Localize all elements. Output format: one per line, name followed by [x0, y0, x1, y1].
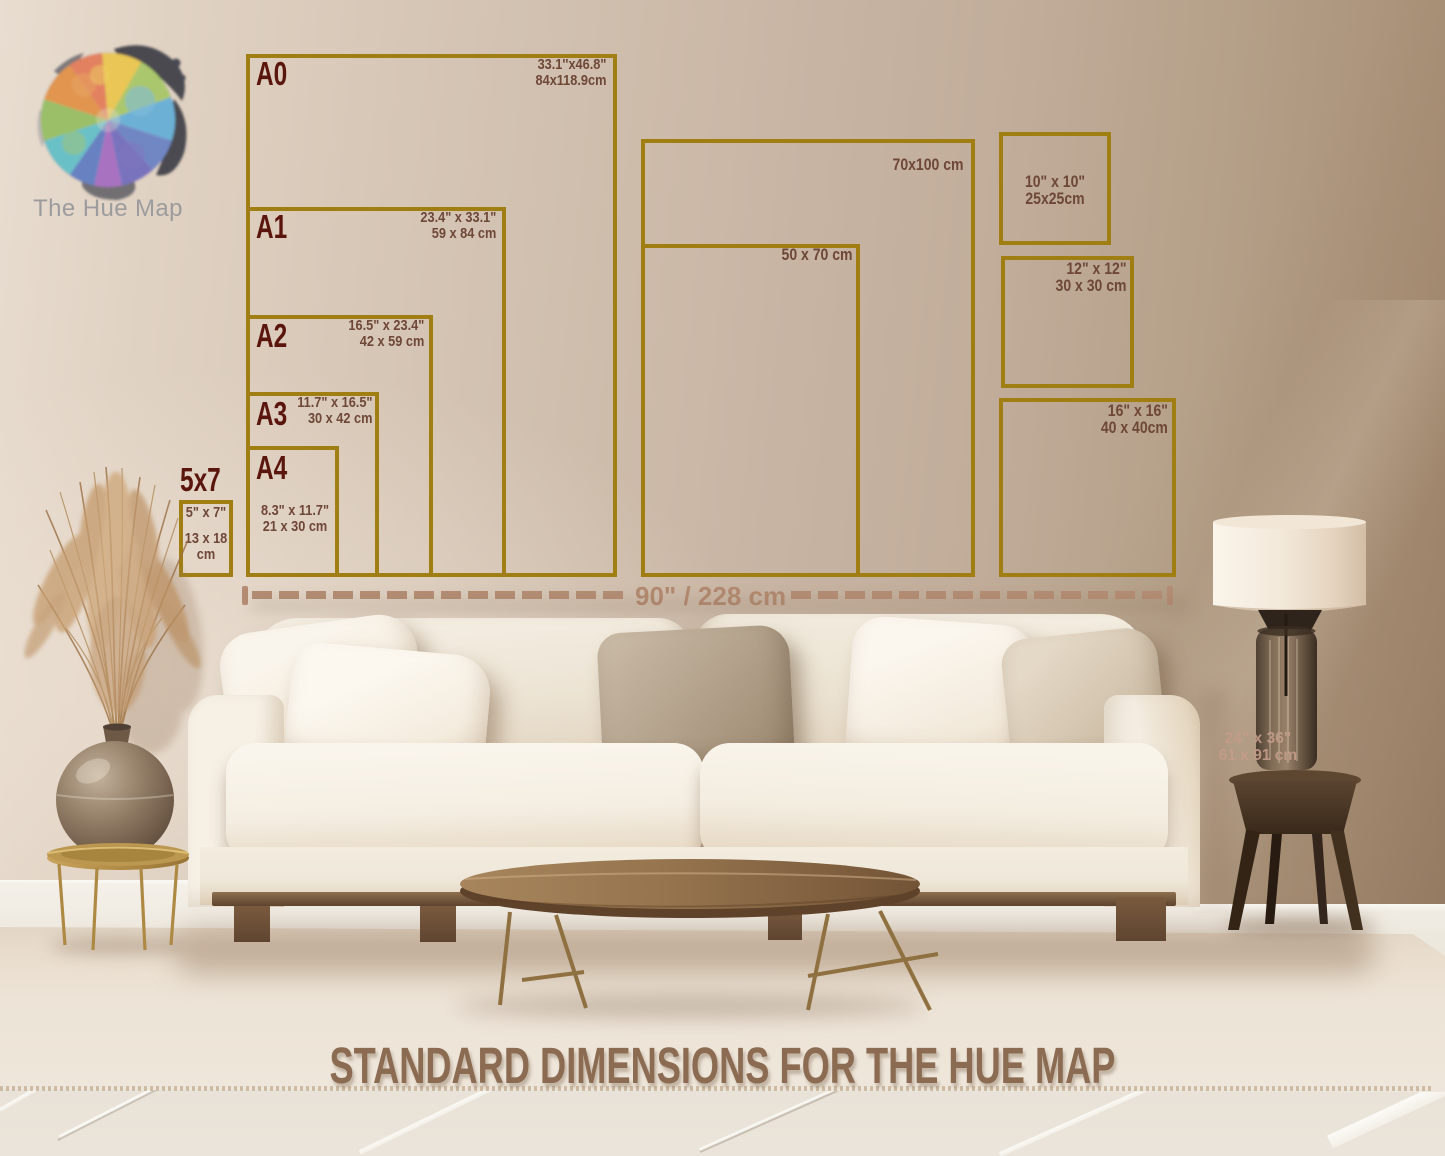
svg-text:The Hue Map: The Hue Map: [33, 195, 183, 222]
